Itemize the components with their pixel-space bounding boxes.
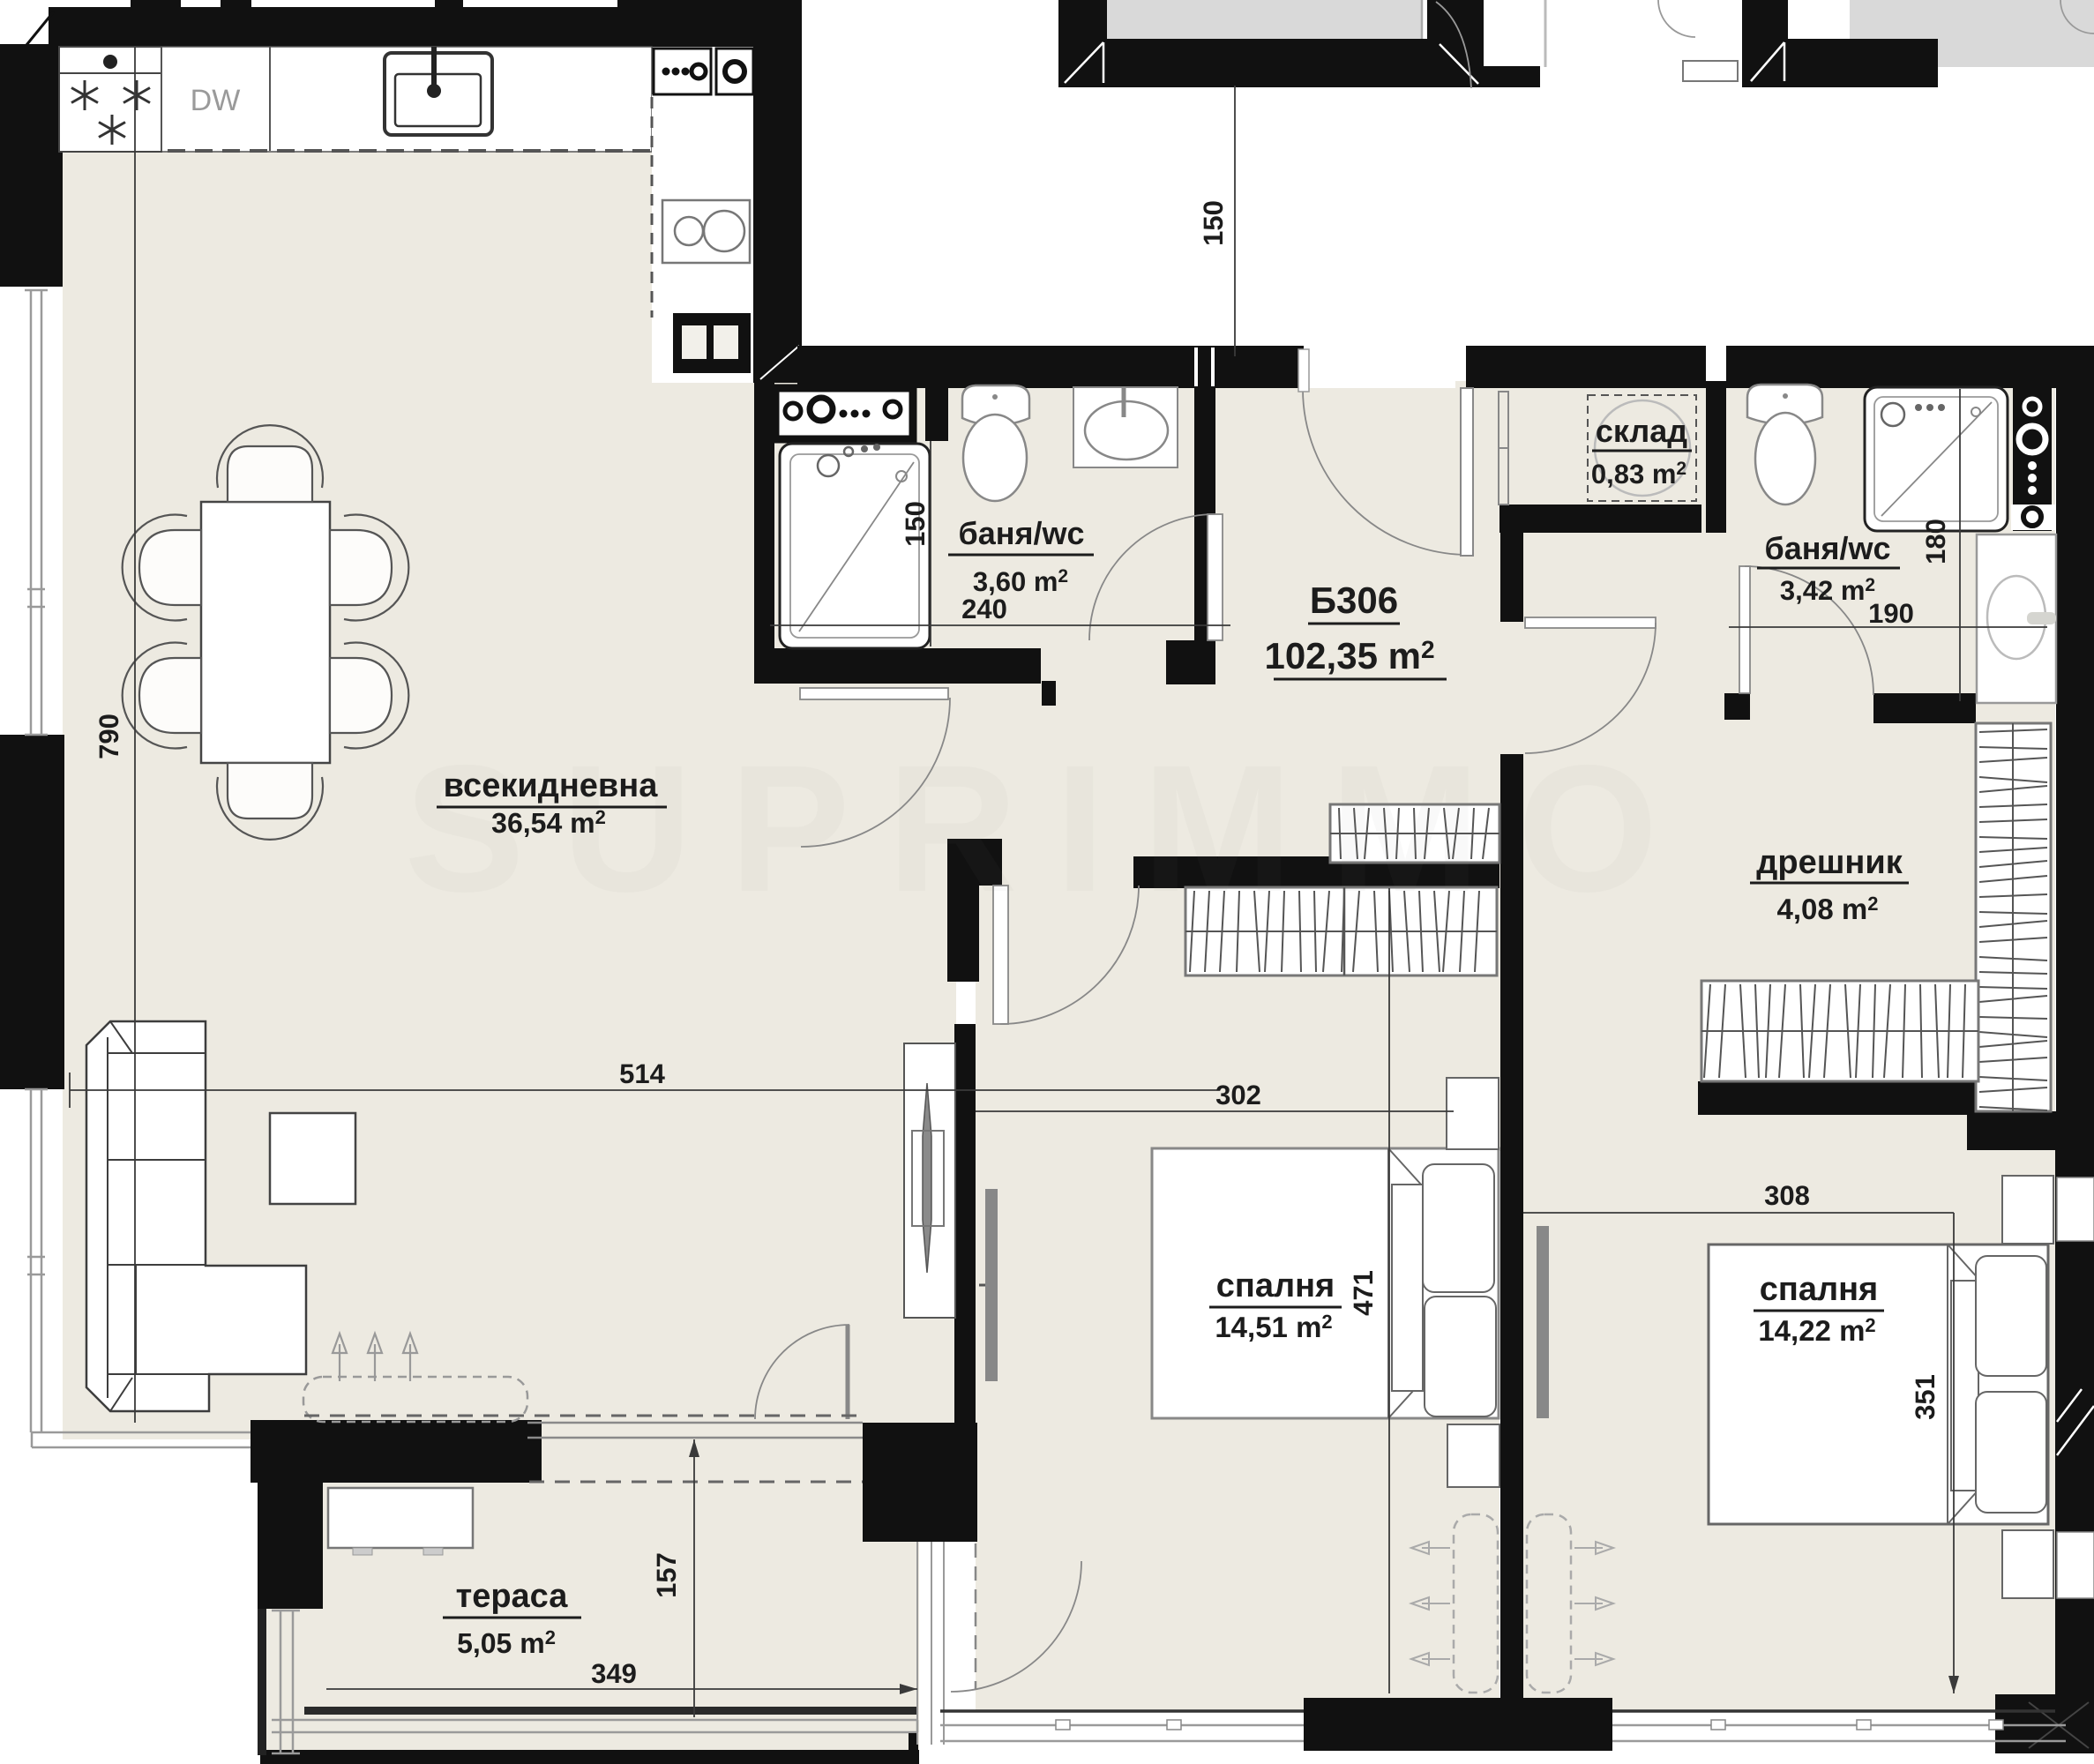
- svg-text:190: 190: [1868, 598, 1914, 629]
- svg-text:дрешник: дрешник: [1756, 844, 1903, 881]
- svg-text:180: 180: [1920, 519, 1951, 564]
- svg-text:0,83 m2: 0,83 m2: [1591, 459, 1686, 490]
- svg-text:спалня: спалня: [1760, 1271, 1878, 1308]
- svg-text:спалня: спалня: [1216, 1267, 1335, 1304]
- svg-text:5,05 m2: 5,05 m2: [457, 1626, 556, 1659]
- svg-text:102,35 m2: 102,35 m2: [1264, 635, 1434, 676]
- svg-text:302: 302: [1215, 1080, 1261, 1110]
- svg-text:DW: DW: [191, 84, 241, 117]
- svg-text:14,51 m2: 14,51 m2: [1215, 1311, 1332, 1343]
- svg-text:14,22 m2: 14,22 m2: [1758, 1314, 1875, 1347]
- svg-text:Б306: Б306: [1310, 579, 1398, 621]
- svg-text:351: 351: [1910, 1374, 1941, 1420]
- svg-text:150: 150: [900, 501, 931, 547]
- svg-text:150: 150: [1198, 200, 1229, 246]
- svg-text:157: 157: [651, 1552, 682, 1598]
- svg-text:4,08 m2: 4,08 m2: [1777, 893, 1879, 925]
- svg-text:36,54 m2: 36,54 m2: [491, 806, 606, 839]
- svg-text:3,42 m2: 3,42 m2: [1780, 575, 1875, 606]
- svg-text:3,60 m2: 3,60 m2: [973, 566, 1068, 597]
- svg-text:SUPRIMMO: SUPRIMMO: [404, 728, 1695, 930]
- svg-text:240: 240: [961, 594, 1007, 624]
- svg-text:790: 790: [93, 714, 124, 759]
- svg-text:всекидневна: всекидневна: [444, 767, 659, 804]
- svg-text:баня/wc: баня/wc: [1764, 530, 1890, 566]
- svg-text:баня/wc: баня/wc: [958, 515, 1084, 551]
- svg-text:склад: склад: [1596, 413, 1687, 449]
- svg-text:471: 471: [1348, 1270, 1379, 1316]
- svg-text:514: 514: [619, 1058, 665, 1089]
- svg-text:349: 349: [591, 1658, 637, 1689]
- svg-text:тераса: тераса: [456, 1578, 569, 1615]
- svg-text:308: 308: [1764, 1180, 1810, 1211]
